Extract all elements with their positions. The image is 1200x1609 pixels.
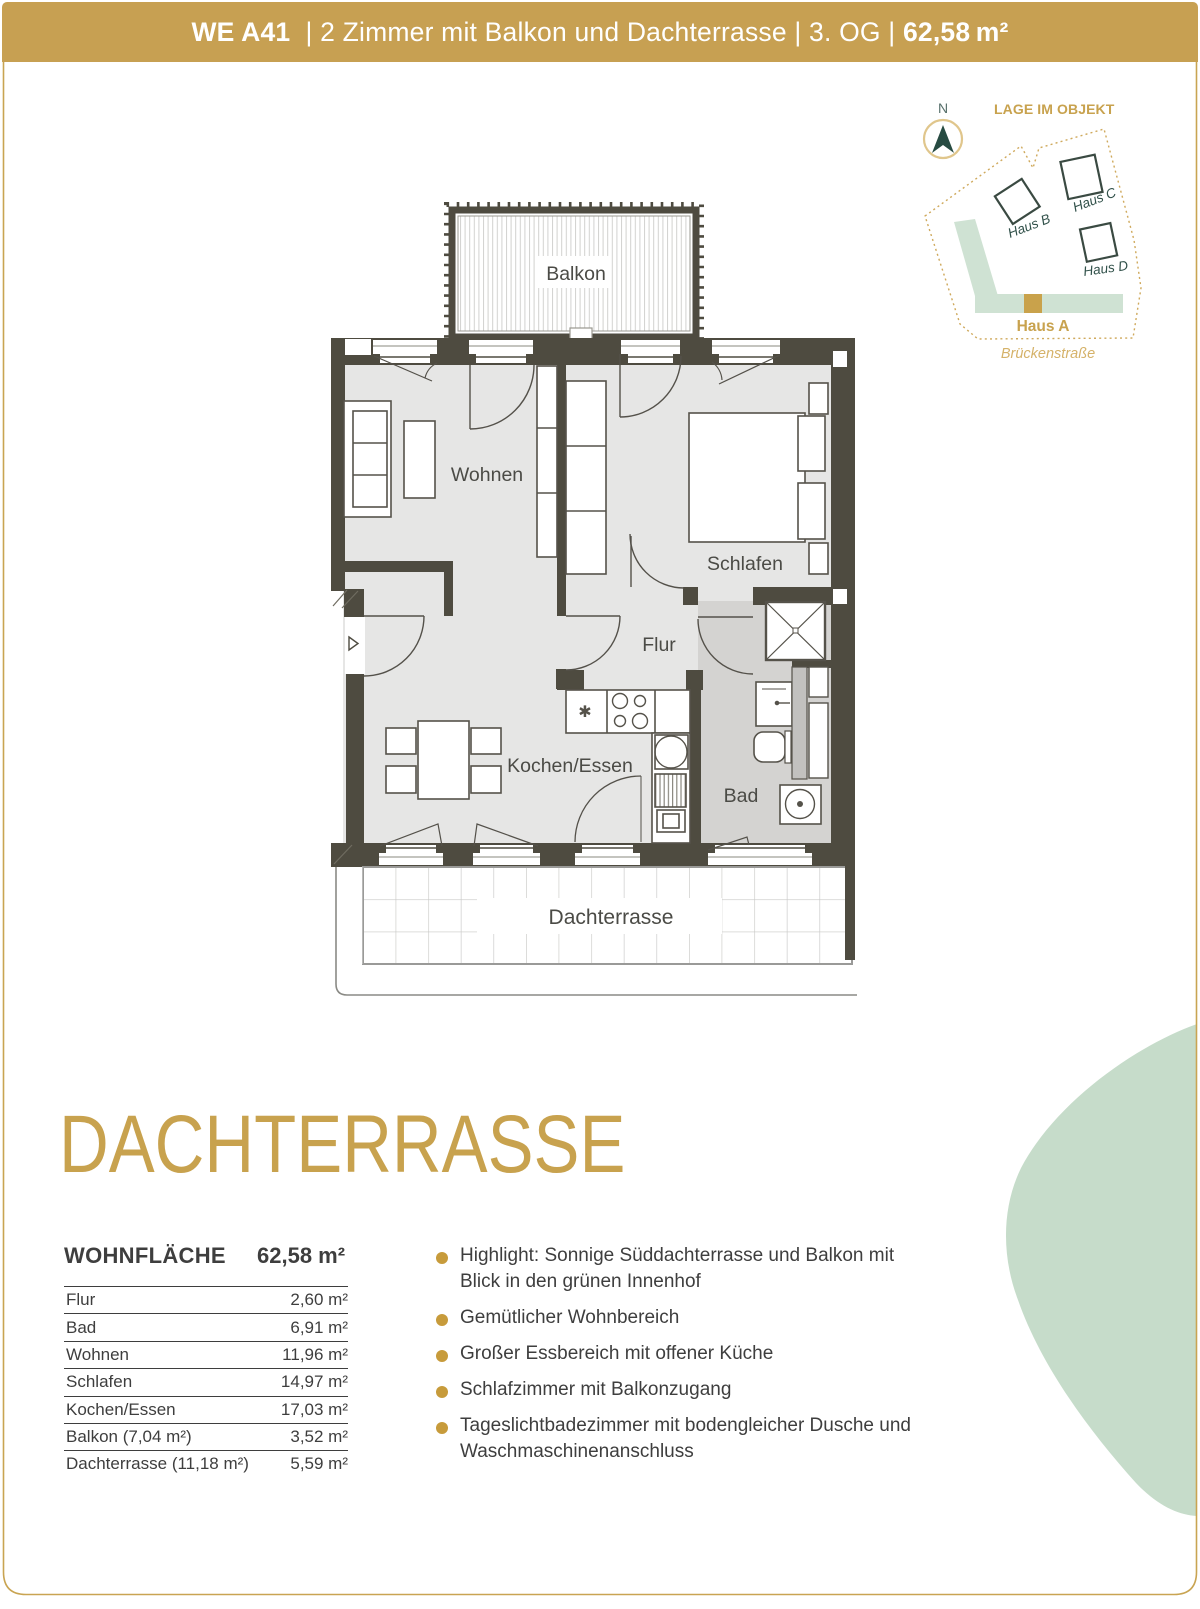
svg-text:LAGE IM OBJEKT: LAGE IM OBJEKT <box>994 101 1115 117</box>
svg-text:Wohnen: Wohnen <box>451 464 523 486</box>
svg-text:✱: ✱ <box>578 704 591 721</box>
svg-text:Haus C: Haus C <box>1071 185 1119 215</box>
svg-text:N: N <box>938 100 948 116</box>
svg-text:Schlafen: Schlafen <box>707 553 783 575</box>
svg-text:Bad: Bad <box>724 785 759 807</box>
svg-text:Dachterrasse: Dachterrasse <box>549 906 674 929</box>
svg-text:Kochen/Essen: Kochen/Essen <box>507 755 633 777</box>
svg-text:Haus B: Haus B <box>1006 211 1053 241</box>
svg-text:Flur: Flur <box>642 634 676 656</box>
svg-text:Haus A: Haus A <box>1017 318 1070 335</box>
svg-text:Balkon: Balkon <box>546 263 606 285</box>
svg-text:Brückenstraße: Brückenstraße <box>1001 346 1095 362</box>
